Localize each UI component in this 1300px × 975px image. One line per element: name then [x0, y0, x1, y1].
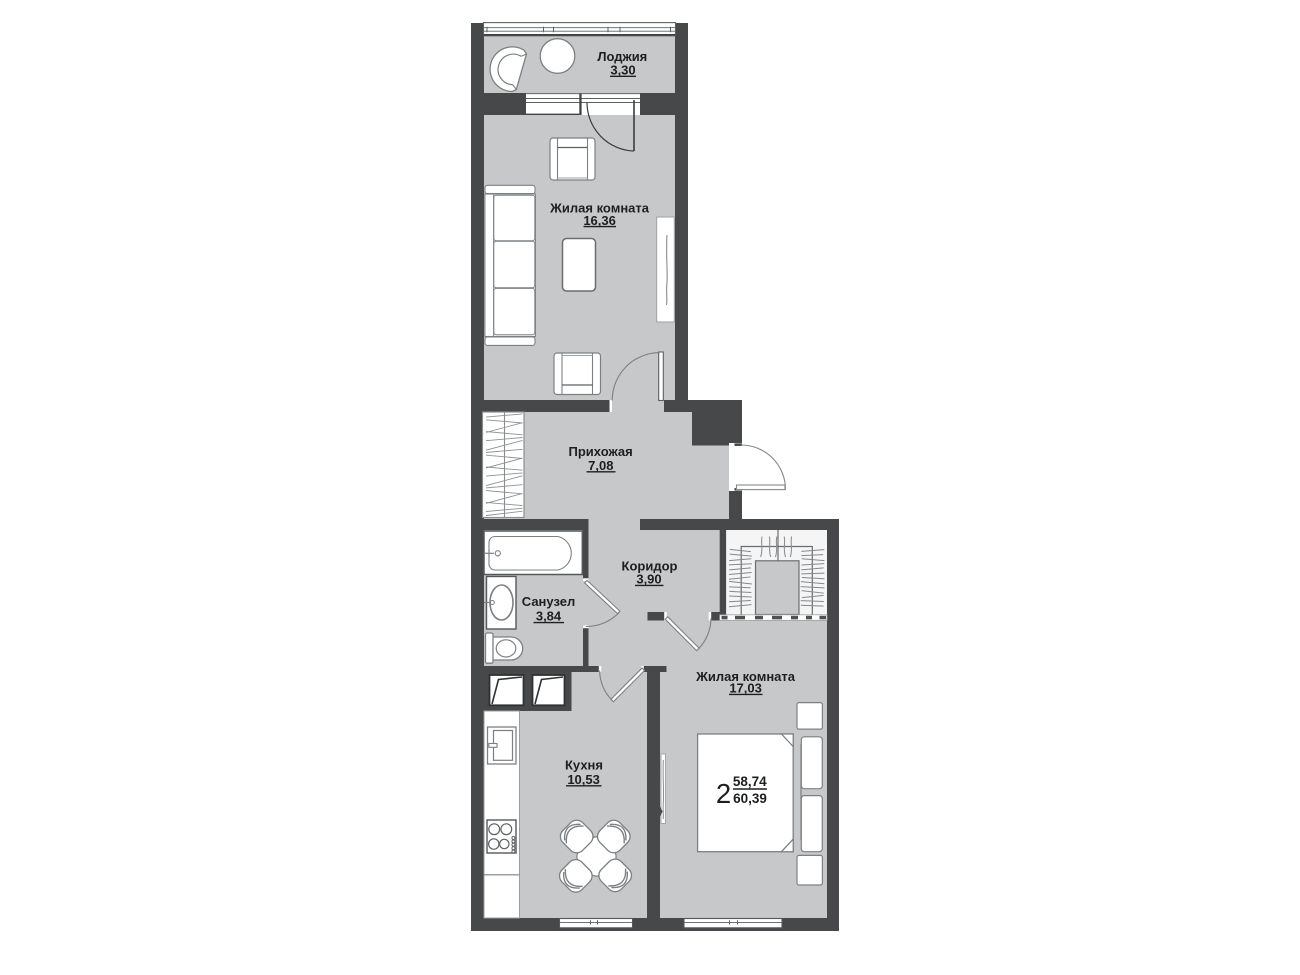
- svg-text:16,36: 16,36: [583, 213, 616, 228]
- svg-text:3,30: 3,30: [610, 63, 635, 78]
- svg-text:2: 2: [716, 778, 731, 809]
- svg-text:58,74: 58,74: [733, 774, 767, 789]
- svg-text:7,08: 7,08: [588, 458, 613, 473]
- svg-text:17,03: 17,03: [729, 681, 762, 696]
- svg-text:Кухня: Кухня: [565, 758, 603, 773]
- svg-text:Прихожая: Прихожая: [569, 444, 633, 459]
- svg-text:3,84: 3,84: [536, 609, 562, 624]
- svg-text:10,53: 10,53: [567, 772, 600, 787]
- svg-text:3,90: 3,90: [636, 572, 661, 587]
- svg-text:60,39: 60,39: [733, 791, 767, 806]
- svg-text:Санузел: Санузел: [522, 594, 575, 609]
